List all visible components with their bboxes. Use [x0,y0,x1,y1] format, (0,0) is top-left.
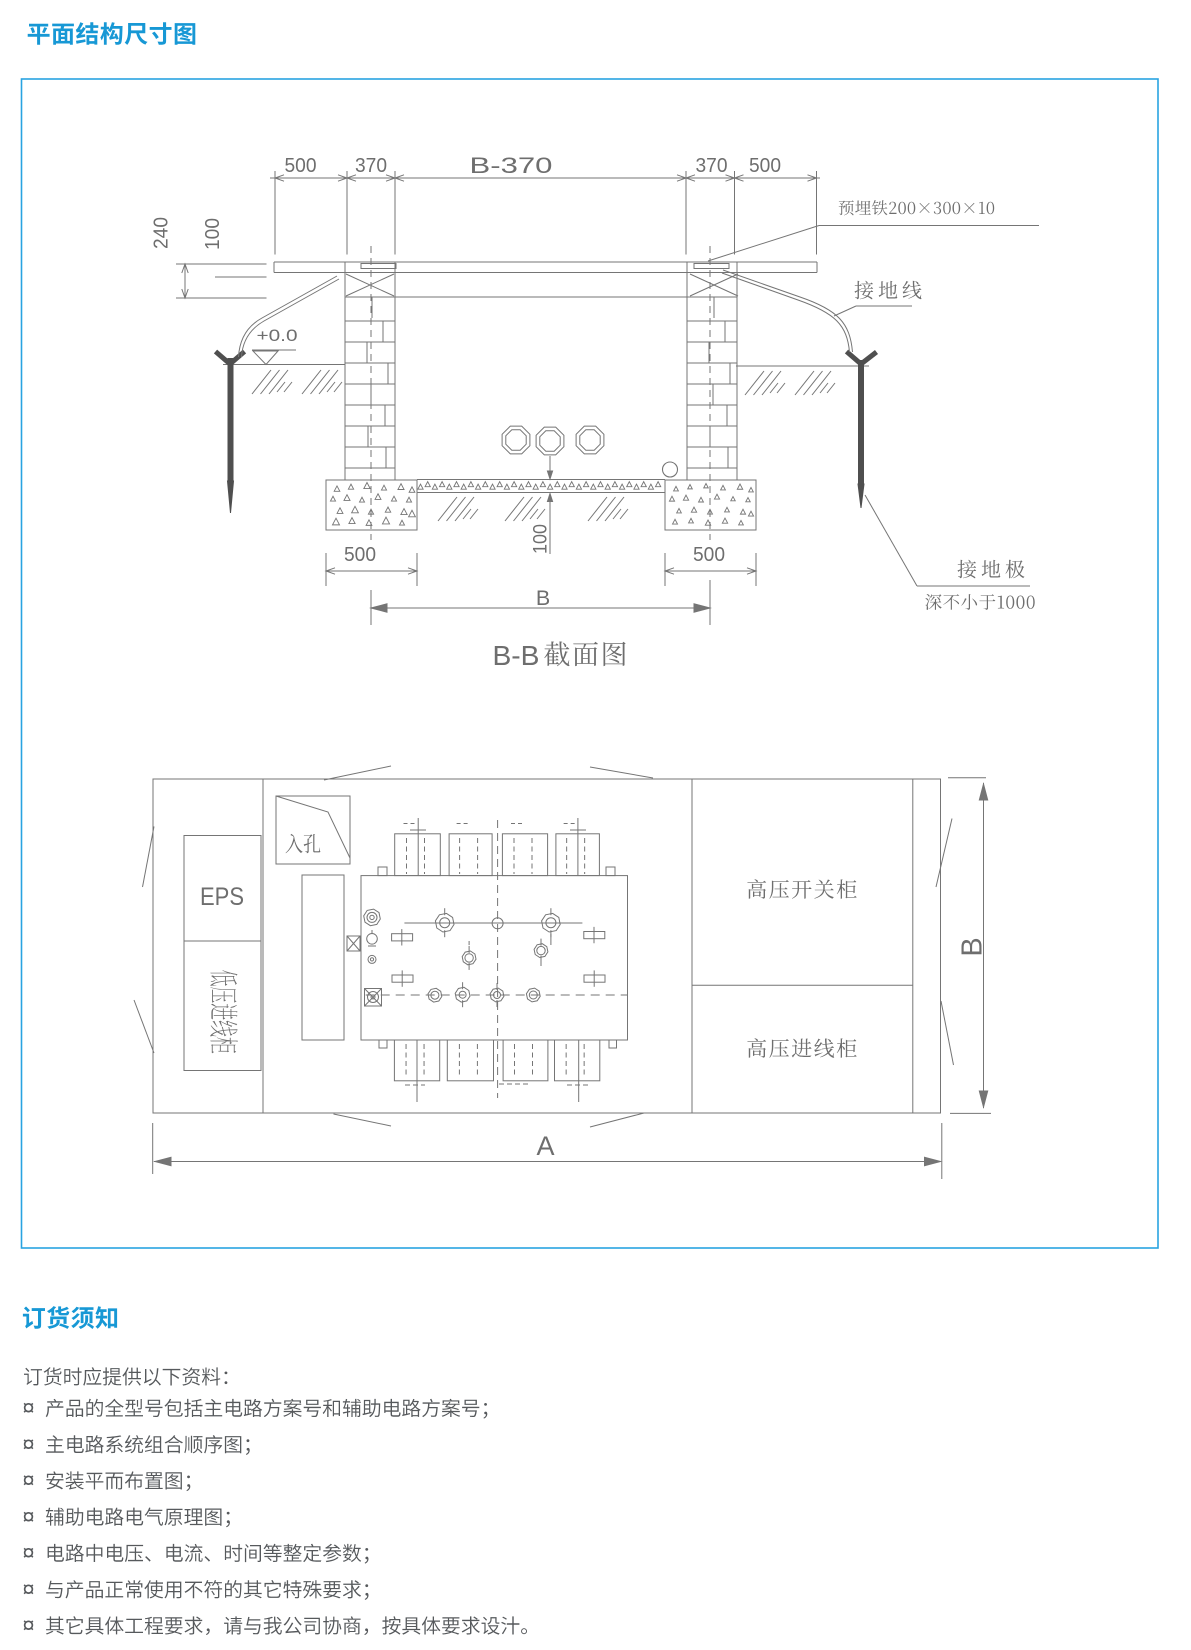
svg-text:¤: ¤ [22,1613,34,1638]
svg-text:¤: ¤ [22,1540,34,1565]
svg-text:370: 370 [696,155,728,177]
svg-text:B-370: B-370 [470,153,553,178]
svg-text:B: B [536,586,550,610]
svg-text:100: 100 [202,218,224,250]
svg-text:500: 500 [749,155,781,177]
svg-text:240: 240 [151,217,173,249]
svg-text:¤: ¤ [22,1431,34,1456]
svg-text:¤: ¤ [22,1504,34,1529]
svg-text:B: B [957,937,989,956]
svg-text:B-B: B-B [493,640,540,671]
svg-text:500: 500 [285,155,317,177]
svg-text:A: A [536,1131,554,1161]
svg-text:+0.0: +0.0 [257,326,298,345]
svg-text:500: 500 [693,544,725,566]
svg-text:¤: ¤ [22,1468,34,1493]
svg-text:500: 500 [344,544,376,566]
svg-text:370: 370 [355,155,387,177]
svg-text:¤: ¤ [22,1395,34,1420]
svg-text:EPS: EPS [200,883,244,911]
svg-text:100: 100 [531,524,552,554]
svg-text:¤: ¤ [22,1576,34,1601]
